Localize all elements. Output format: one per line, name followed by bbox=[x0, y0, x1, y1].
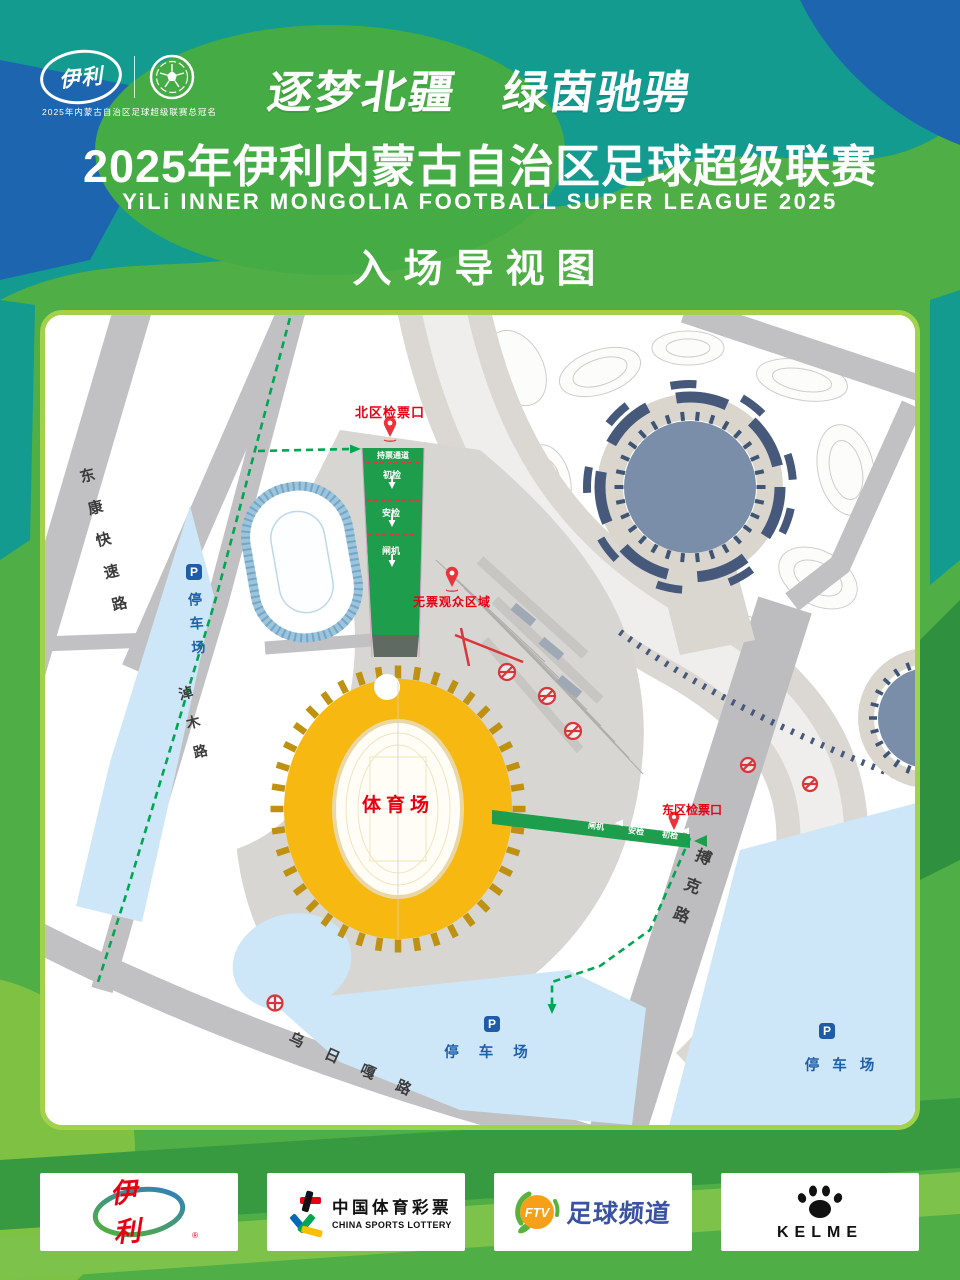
north-flow-step2: 安检 bbox=[382, 506, 400, 519]
entrance-guide-map: 东康快速路 淖木路 搏克路 乌日嘎路 北区检票口 无票观众区域 东区检票口 体育… bbox=[40, 310, 920, 1130]
sponsor-ftv-name: 足球频道 bbox=[566, 1194, 673, 1230]
sponsor-yili-name: 伊利 bbox=[108, 1168, 170, 1250]
main-title: 2025年伊利内蒙古自治区足球超级联赛 bbox=[0, 130, 960, 195]
parking-icon-west: P bbox=[186, 564, 202, 580]
registered-mark: ® bbox=[192, 1231, 198, 1240]
parking-icon-east: P bbox=[819, 1023, 835, 1039]
sponsor-card-yili: 伊利 ® bbox=[40, 1173, 238, 1251]
parking-icon-south: P bbox=[484, 1016, 500, 1032]
china-sports-lottery-icon bbox=[280, 1190, 324, 1234]
parking-label-east: 停车场 bbox=[805, 1054, 888, 1075]
north-gate-label: 北区检票口 bbox=[355, 402, 425, 421]
map-canvas bbox=[40, 310, 920, 1130]
title-english: YiLi INNER MONGOLIA FOOTBALL SUPER LEAGU… bbox=[0, 189, 960, 215]
sponsor-card-ftv: FTV 足球频道 bbox=[494, 1173, 692, 1251]
north-flow-channel: 持票通道 bbox=[377, 450, 409, 461]
east-gate-label: 东区检票口 bbox=[662, 801, 722, 818]
north-flow-step3: 闸机 bbox=[382, 544, 400, 557]
sponsor-card-kelme: KELME bbox=[721, 1173, 919, 1251]
east-structure bbox=[866, 656, 920, 780]
ftv-abbr: FTV bbox=[525, 1205, 550, 1220]
east-flow-step1: 初检 bbox=[661, 829, 678, 842]
no-ticket-area-label: 无票观众区域 bbox=[413, 593, 491, 610]
sponsor-row: 伊利 ® 中国体育彩票 CHINA SPORTS LOTTERY FTV 足球频… bbox=[40, 1173, 920, 1251]
ftv-ball-icon: FTV bbox=[515, 1189, 561, 1235]
east-flow-step2: 安检 bbox=[627, 825, 644, 838]
east-flow-step3: 闸机 bbox=[587, 820, 604, 833]
sponsor-lottery-name: 中国体育彩票 bbox=[332, 1194, 452, 1218]
map-heading: 入场导视图 bbox=[0, 238, 960, 294]
sponsor-card-lottery: 中国体育彩票 CHINA SPORTS LOTTERY bbox=[267, 1173, 465, 1251]
parking-label-south: 停车场 bbox=[444, 1041, 548, 1062]
stadium-label: 体育场 bbox=[362, 790, 434, 817]
sponsor-lottery-name-en: CHINA SPORTS LOTTERY bbox=[332, 1220, 452, 1230]
sponsor-kelme-name: KELME bbox=[777, 1224, 863, 1242]
kelme-paw-icon bbox=[794, 1182, 846, 1222]
slogan: 逐梦北疆 绿茵驰骋 bbox=[0, 56, 960, 121]
north-flow-step1: 初检 bbox=[383, 468, 401, 481]
